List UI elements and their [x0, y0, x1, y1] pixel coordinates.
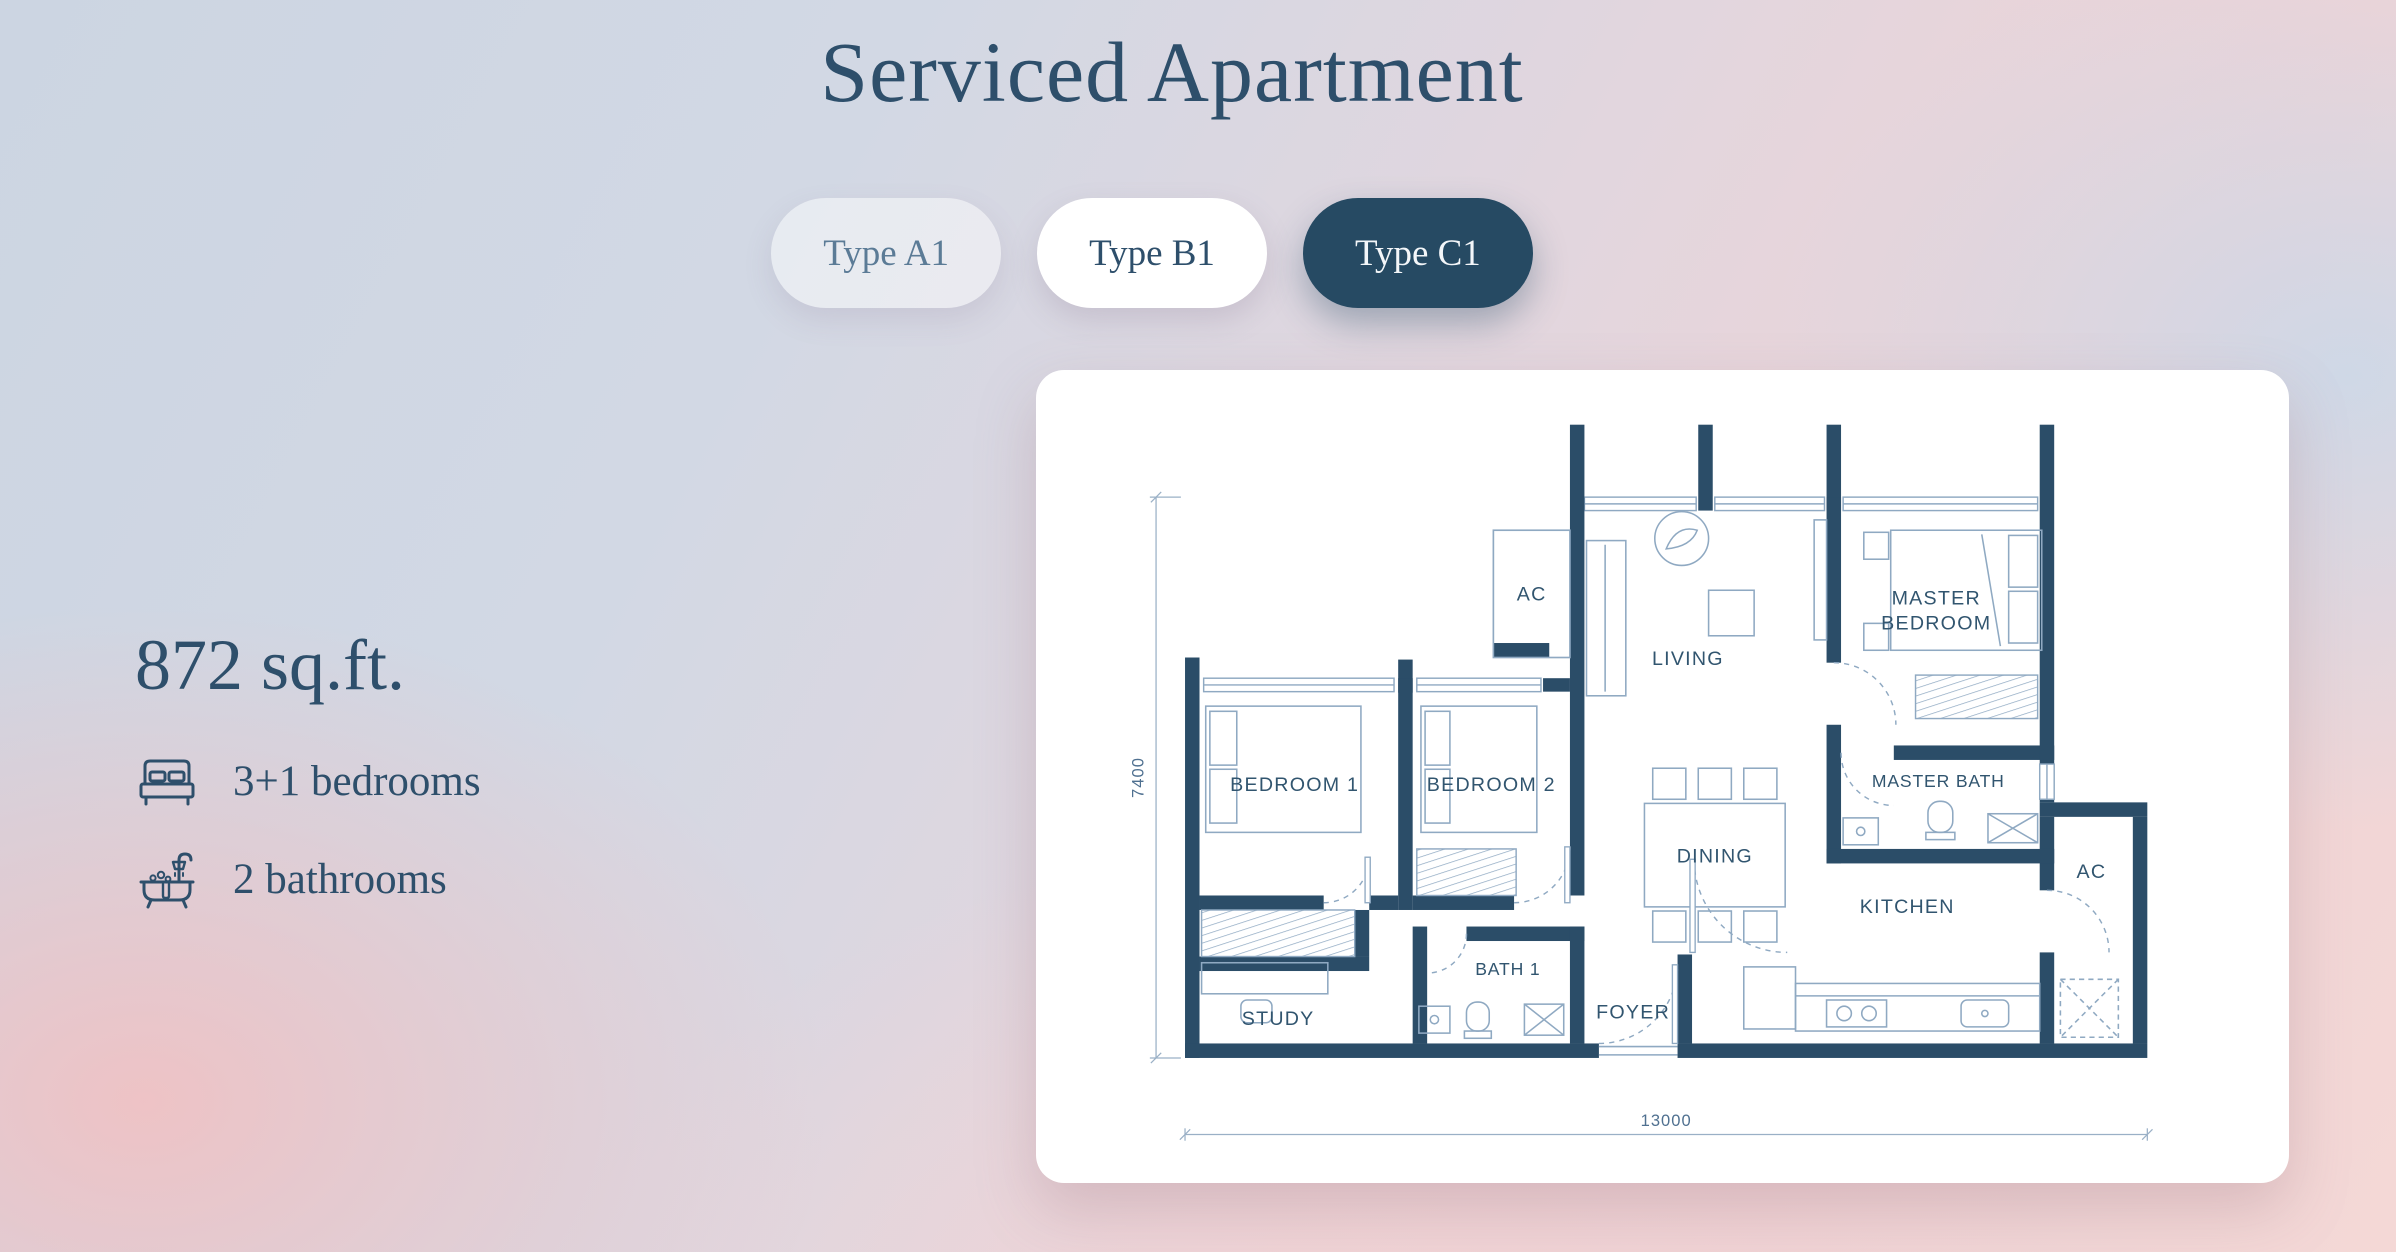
room-label-master-bedroom-line2: BEDROOM — [1881, 613, 1991, 635]
room-label-kitchen: KITCHEN — [1860, 896, 1955, 918]
bathtub-icon — [135, 848, 199, 912]
room-label-master-bedroom-line1: MASTER — [1892, 588, 1981, 610]
walls-layer — [1185, 425, 2147, 1058]
master-bath-window — [2040, 764, 2054, 799]
bedrooms-row: 3+1 bedrooms — [135, 750, 655, 814]
room-label-bedroom-1: BEDROOM 1 — [1230, 774, 1359, 796]
dimension-width-label: 13000 — [1641, 1111, 1692, 1130]
dimension-depth-label: 7400 — [1129, 757, 1148, 798]
tab-type-b1[interactable]: Type B1 — [1037, 198, 1267, 308]
room-label-master-bath: MASTER BATH — [1872, 771, 2005, 791]
room-label-bedroom-2: BEDROOM 2 — [1427, 774, 1556, 796]
tab-type-c1[interactable]: Type C1 — [1303, 198, 1533, 308]
bathrooms-label: 2 bathrooms — [233, 855, 447, 904]
unit-type-tabs: Type A1 Type B1 Type C1 — [0, 198, 2350, 308]
floorplan-card: BEDROOM 1 BEDROOM 2 AC LIVING MASTER BED… — [1036, 370, 2289, 1183]
page: Serviced Apartment Type A1 Type B1 Type … — [0, 0, 2396, 1252]
room-label-ac-lower: AC — [2077, 861, 2107, 883]
unit-stats: 872 sq.ft. 3+1 bedrooms — [135, 628, 655, 946]
bed-icon — [135, 750, 199, 814]
page-title: Serviced Apartment — [0, 22, 2370, 122]
room-label-living: LIVING — [1652, 648, 1724, 670]
room-label-study: STUDY — [1242, 1008, 1315, 1030]
room-label-bath-1: BATH 1 — [1475, 959, 1540, 979]
room-label-dining: DINING — [1677, 845, 1753, 867]
room-label-ac-upper: AC — [1517, 584, 1547, 606]
dimension-depth — [1150, 492, 1181, 1063]
room-label-foyer: FOYER — [1596, 1002, 1670, 1024]
floorplan-drawing: BEDROOM 1 BEDROOM 2 AC LIVING MASTER BED… — [1086, 404, 2236, 1149]
bathrooms-row: 2 bathrooms — [135, 848, 655, 912]
bedrooms-label: 3+1 bedrooms — [233, 757, 481, 806]
unit-area: 872 sq.ft. — [135, 628, 655, 704]
tab-type-a1[interactable]: Type A1 — [771, 198, 1001, 308]
